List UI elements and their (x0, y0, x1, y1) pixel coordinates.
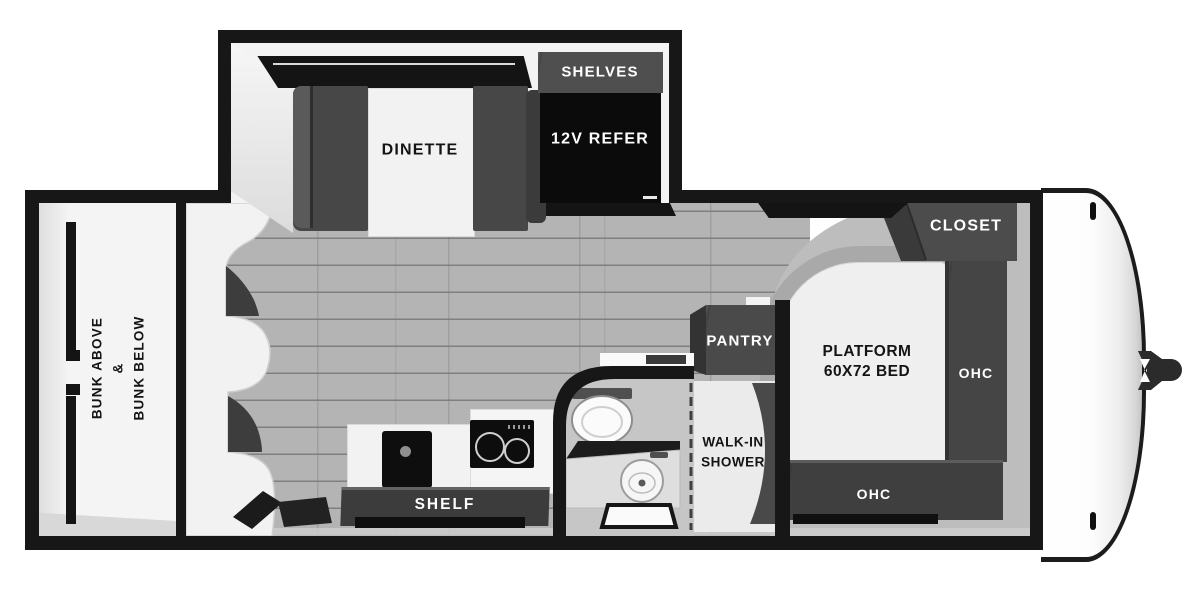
vanity-faucet (650, 452, 668, 458)
bed-window (755, 203, 908, 218)
closet-label: CLOSET (930, 217, 1002, 238)
dinette-table (368, 88, 475, 237)
dinette-label: DINETTE (382, 141, 459, 162)
bathroom-right-wall (775, 300, 790, 536)
bed-label-line2: 60X72 BED (823, 362, 912, 382)
walk-in-shower-label-line2: SHOWER (701, 452, 765, 472)
bunk-room-divider-wall (176, 190, 186, 550)
refrigerator-label: 12V REFER (551, 130, 649, 151)
shelves-label: SHELVES (561, 62, 638, 82)
entry-wardrobe (186, 203, 275, 536)
shelf-label: SHELF (415, 495, 476, 515)
entry-wardrobe-shelf-upper (226, 266, 259, 316)
bed-label-line1: PLATFORM (823, 342, 912, 362)
refrigerator-handle (643, 196, 657, 199)
entry-wardrobe-shelf-lower (228, 396, 262, 452)
floorplan-stage: DINETTE SHELVES 12V REFER BUNK ABOVE & B… (0, 0, 1200, 600)
slideout-wall-top (218, 30, 682, 43)
ohc-side-label: OHC (959, 364, 994, 382)
bath-mat (602, 505, 676, 527)
bunk-label: BUNK ABOVE & BUNK BELOW (88, 316, 151, 421)
dinette-window (256, 56, 532, 88)
walk-in-shower-label: WALK-IN SHOWER (701, 432, 765, 471)
dinette-window-sill (273, 63, 516, 65)
pantry-label: PANTRY (706, 331, 773, 351)
bunk-label-line1: BUNK ABOVE (88, 316, 109, 421)
bathroom-wall-vent (646, 355, 686, 364)
dinette-bench-right (473, 86, 528, 231)
main-wall-left (25, 190, 39, 550)
bunk-label-line3: BUNK BELOW (129, 316, 150, 421)
bed-label: PLATFORM 60X72 BED (823, 342, 912, 382)
main-wall-top-right (669, 190, 1043, 203)
walk-in-shower-label-line1: WALK-IN (701, 432, 765, 452)
main-wall-top-left (25, 190, 231, 203)
bunk-label-line2: & (109, 316, 130, 421)
refrigerator-base (524, 203, 676, 216)
ohc-foot-label: OHC (857, 485, 892, 503)
kitchen-mat (278, 497, 332, 527)
vanity-sink-drain (639, 480, 646, 487)
slideout-wall-left (218, 30, 231, 203)
slideout-wall-right (669, 30, 682, 203)
main-wall-right (1030, 190, 1043, 550)
dinette-bench-left-arm (293, 86, 313, 228)
